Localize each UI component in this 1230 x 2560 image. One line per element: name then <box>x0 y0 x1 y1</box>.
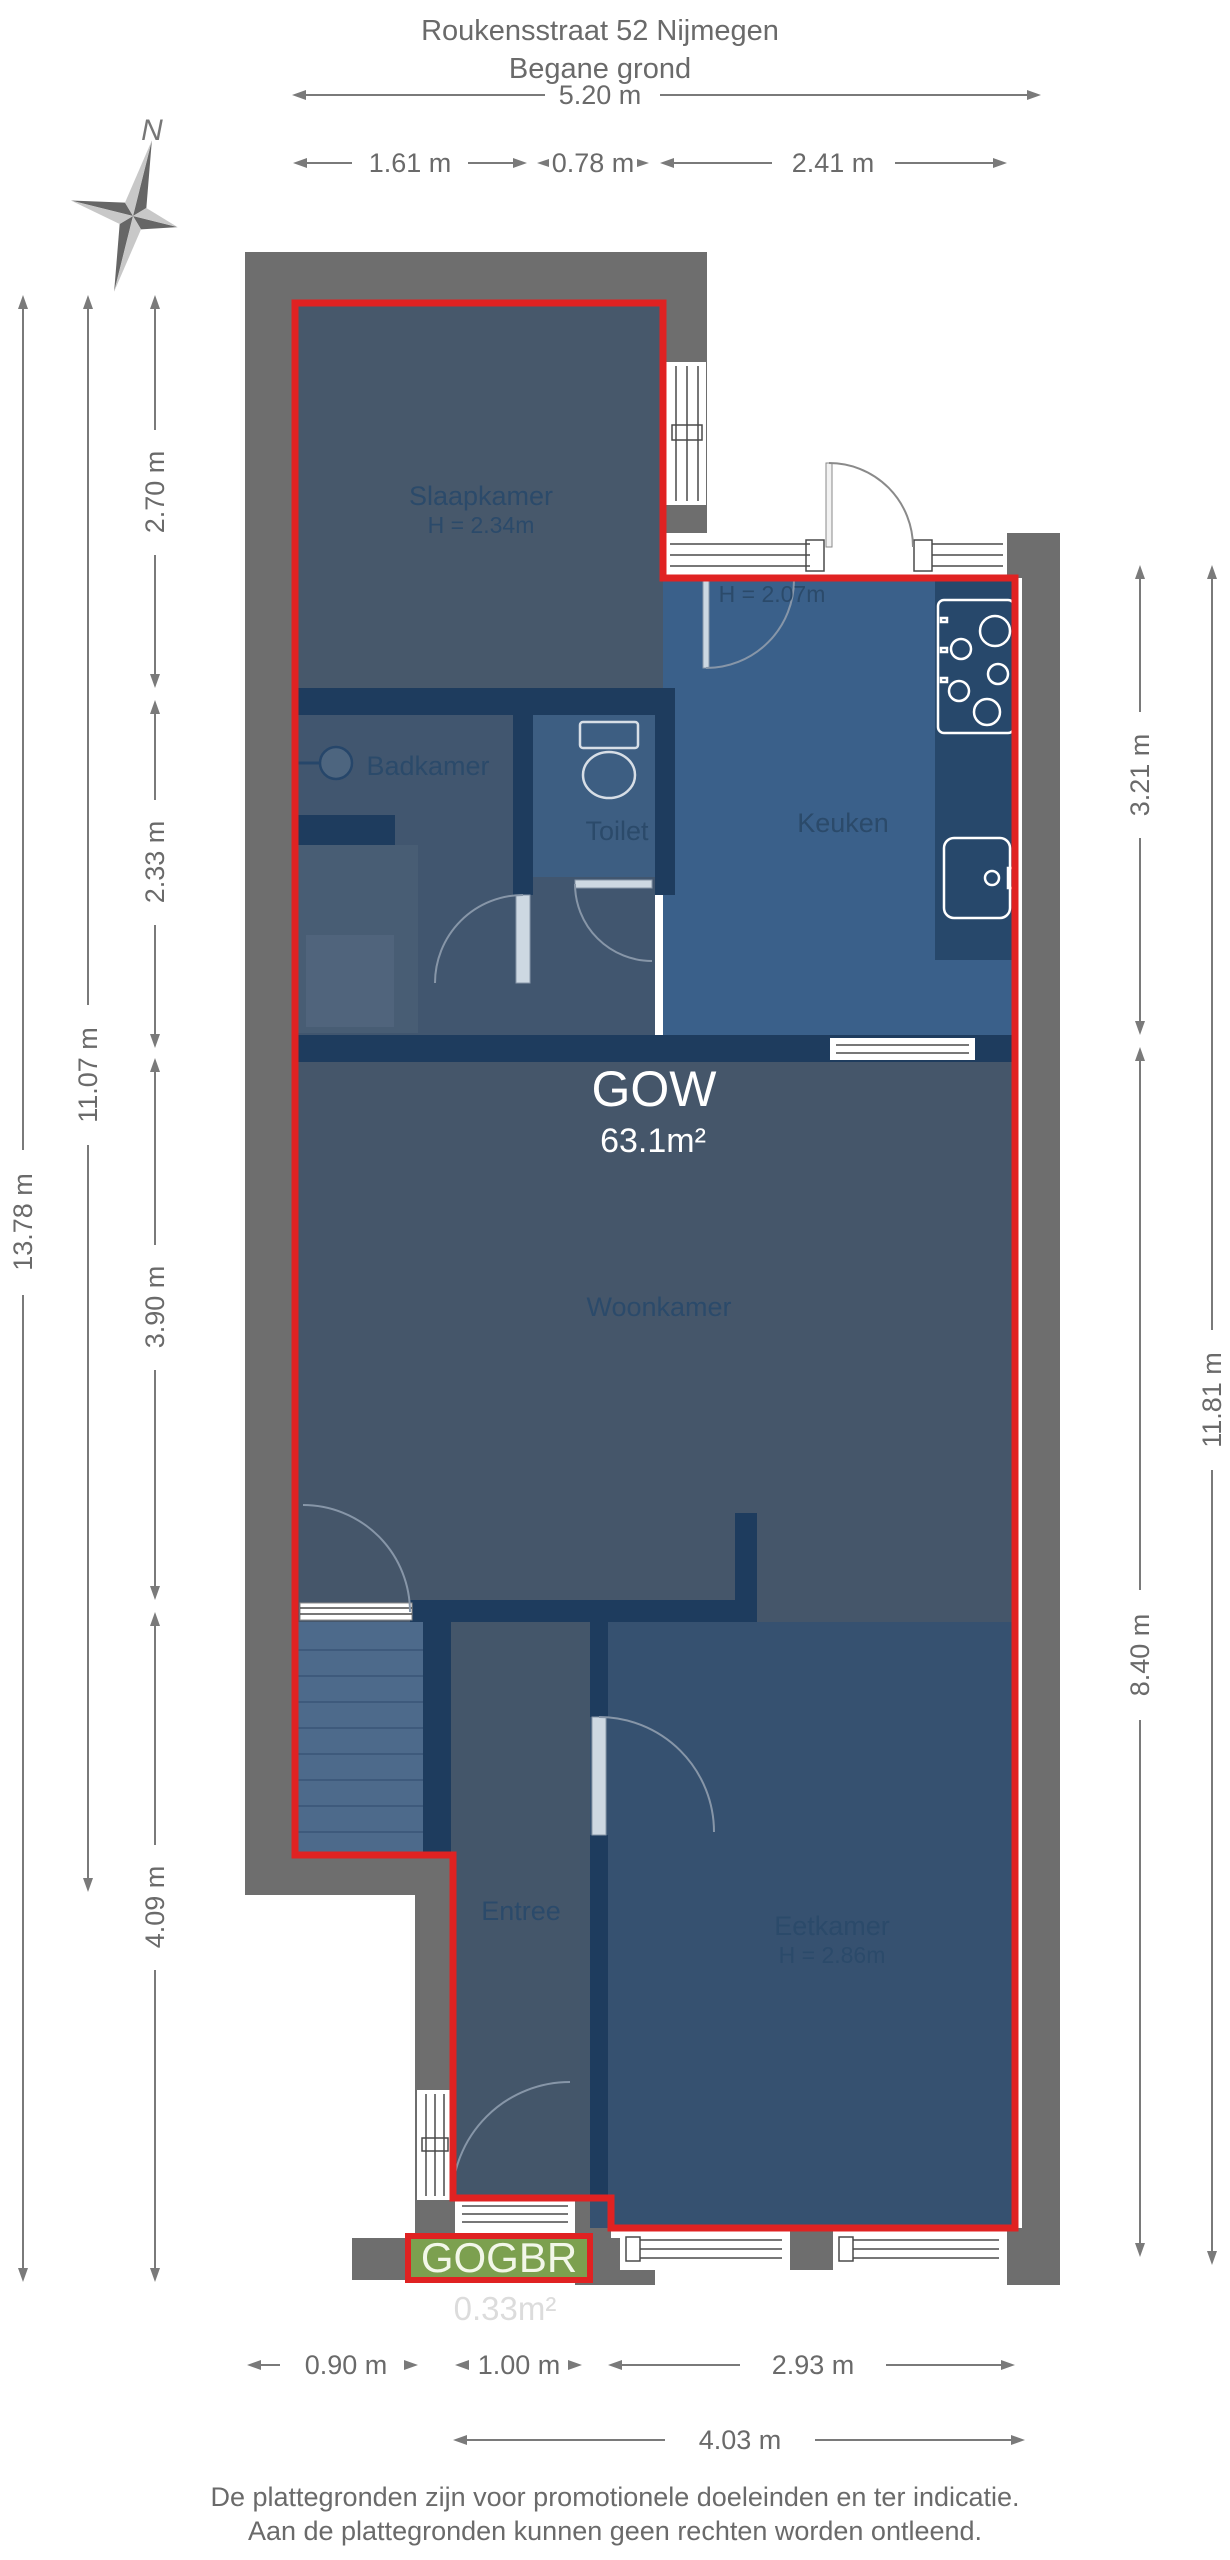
label-eetkamer-height: H = 2.86m <box>779 1942 886 1968</box>
gow-label: GOW <box>592 1061 718 1117</box>
window-front-door <box>455 2198 575 2230</box>
dim-left-seg4: 4.09 m <box>140 1866 170 1949</box>
room-toilet <box>533 715 655 877</box>
dim-bottom-total: 4.03 m <box>453 2425 1025 2455</box>
floorplan-svg: Roukensstraat 52 Nijmegen Begane grond N <box>0 0 1230 2560</box>
gogbr-label: GOGBR <box>421 2234 577 2281</box>
label-toilet: Toilet <box>585 816 649 846</box>
gow-area: 63.1m² <box>600 1122 706 1160</box>
kitchen-counter <box>935 578 1015 960</box>
dim-bottom-seg1: 0.90 m <box>305 2350 388 2380</box>
dim-right-seg2: 8.40 m <box>1125 1614 1155 1697</box>
gow-label-group: GOW 63.1m² <box>592 1061 718 1160</box>
dim-bottom-total-label: 4.03 m <box>699 2425 782 2455</box>
footer-disclaimer: De plattegronden zijn voor promotionele … <box>210 2482 1019 2546</box>
dim-left-middle: 11.07 m <box>73 295 103 1892</box>
dim-left-inner: 2.70 m 2.33 m 3.90 m 4.09 m <box>140 295 170 2282</box>
gogbr-block: GOGBR 0.33m² <box>408 2234 590 2327</box>
dim-right-inner: 3.21 m 8.40 m <box>1125 565 1155 2257</box>
window-kitchen-top <box>663 533 1007 578</box>
dim-right-outer: 11.81 m <box>1197 565 1227 2265</box>
compass-rose-icon: N <box>52 114 196 303</box>
dim-bottom-segments: 0.90 m 1.00 m 2.93 m <box>247 2350 1015 2380</box>
title-line1: Roukensstraat 52 Nijmegen <box>421 15 779 47</box>
dim-bottom-seg3: 2.93 m <box>772 2350 855 2380</box>
label-entree: Entree <box>481 1896 561 1926</box>
label-slaapkamer-height: H = 2.34m <box>428 512 535 538</box>
dim-top-total-label: 5.20 m <box>559 80 642 110</box>
window-eetkamer-left <box>620 2228 790 2270</box>
label-eetkamer: Eetkamer <box>774 1911 890 1941</box>
dim-right-seg1: 3.21 m <box>1125 734 1155 817</box>
dim-bottom-seg2: 1.00 m <box>478 2350 561 2380</box>
dim-left-seg1: 2.70 m <box>140 451 170 534</box>
window-courtyard-left <box>666 362 706 505</box>
window-eetkamer-right <box>833 2228 1007 2270</box>
label-slaapkamer: Slaapkamer <box>409 481 553 511</box>
dim-top-seg3: 2.41 m <box>792 148 875 178</box>
dim-left-middle-label: 11.07 m <box>73 1027 103 1123</box>
label-badkamer: Badkamer <box>366 751 489 781</box>
dim-top-seg2: 0.78 m <box>552 148 635 178</box>
compass-north-label: N <box>141 114 163 147</box>
dim-left-outer-label: 13.78 m <box>8 1173 38 1271</box>
label-keuken: Keuken <box>797 808 889 838</box>
stairs <box>298 1622 423 1852</box>
dim-left-seg2: 2.33 m <box>140 821 170 904</box>
room-fills <box>295 303 1015 2228</box>
footer-line1: De plattegronden zijn voor promotionele … <box>210 2482 1019 2512</box>
dim-left-seg3: 3.90 m <box>140 1266 170 1349</box>
dim-top-segments: 1.61 m 0.78 m 2.41 m <box>293 148 1007 178</box>
gogbr-area: 0.33m² <box>454 2290 557 2327</box>
shower-icon <box>298 845 418 1033</box>
window-entree-side <box>417 2090 453 2200</box>
dim-right-outer-label: 11.81 m <box>1197 1352 1227 1448</box>
label-keuken-height: H = 2.07m <box>719 581 826 607</box>
page-title: Roukensstraat 52 Nijmegen Begane grond <box>421 15 779 85</box>
footer-line2: Aan de plattegronden kunnen geen rechten… <box>248 2516 982 2546</box>
dim-top-seg1: 1.61 m <box>369 148 452 178</box>
window-kitchen-hatch <box>830 1038 975 1060</box>
label-woonkamer: Woonkamer <box>586 1292 731 1322</box>
dim-left-outer: 13.78 m <box>8 295 38 2282</box>
